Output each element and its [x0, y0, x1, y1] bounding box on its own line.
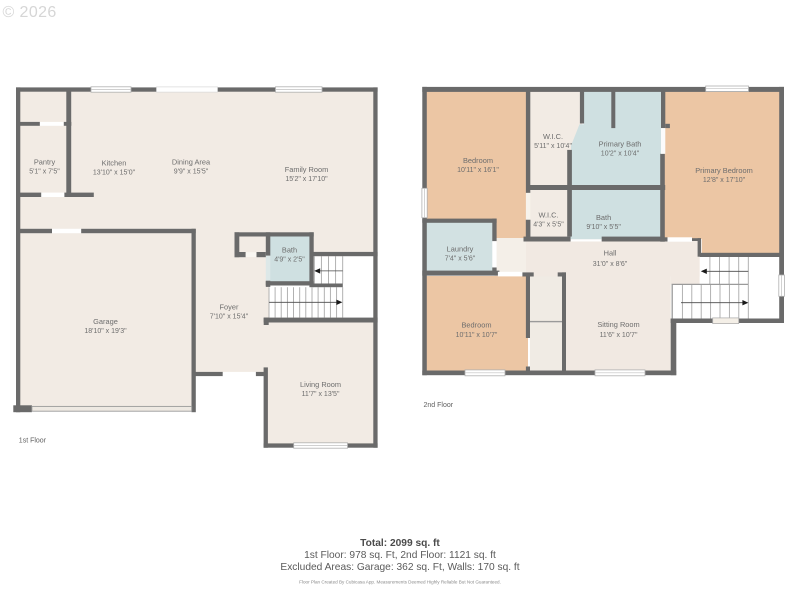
svg-text:Primary Bedroom: Primary Bedroom [695, 166, 753, 175]
svg-text:15'2" x 17'10": 15'2" x 17'10" [285, 176, 328, 183]
svg-text:© 2026: © 2026 [3, 4, 57, 21]
svg-text:Bedroom: Bedroom [463, 156, 493, 165]
svg-text:Floor Plan Created By Cubicasa: Floor Plan Created By Cubicasa App. Meas… [299, 580, 501, 585]
svg-text:18'10" x 19'3": 18'10" x 19'3" [84, 328, 127, 335]
svg-text:4'9" x 2'5": 4'9" x 2'5" [274, 256, 305, 263]
svg-text:Total: 2099 sq. ft: Total: 2099 sq. ft [360, 538, 440, 549]
svg-text:10'11" x 10'7": 10'11" x 10'7" [456, 332, 498, 339]
svg-text:Kitchen: Kitchen [102, 158, 127, 167]
svg-text:9'9" x 15'5": 9'9" x 15'5" [174, 168, 209, 175]
svg-text:11'6" x 10'7": 11'6" x 10'7" [600, 332, 638, 339]
svg-text:W.I.C.: W.I.C. [538, 210, 558, 219]
svg-text:1st Floor: 1st Floor [19, 438, 47, 445]
svg-text:Hall: Hall [604, 249, 617, 258]
svg-text:Living Room: Living Room [300, 380, 341, 389]
svg-text:5'1" x 7'5": 5'1" x 7'5" [29, 168, 60, 175]
svg-text:31'0" x 8'6": 31'0" x 8'6" [593, 261, 628, 268]
svg-text:10'2" x 10'4": 10'2" x 10'4" [601, 150, 640, 157]
svg-text:7'10" x 15'4": 7'10" x 15'4" [210, 314, 249, 321]
svg-text:11'7" x 13'5": 11'7" x 13'5" [302, 391, 340, 398]
svg-text:Bedroom: Bedroom [462, 320, 492, 329]
svg-text:Garage: Garage [93, 317, 118, 326]
svg-text:Excluded Areas: Garage: 362 sq: Excluded Areas: Garage: 362 sq. Ft, Wall… [280, 562, 519, 573]
svg-text:Laundry: Laundry [447, 244, 474, 253]
svg-text:9'10" x 5'5": 9'10" x 5'5" [586, 224, 621, 231]
svg-text:1st Floor: 978 sq. Ft, 2nd Flo: 1st Floor: 978 sq. Ft, 2nd Floor: 1121 s… [304, 550, 496, 561]
svg-text:Pantry: Pantry [34, 157, 56, 166]
svg-text:13'10" x 15'0": 13'10" x 15'0" [93, 169, 136, 176]
svg-text:4'3" x 5'5": 4'3" x 5'5" [533, 221, 564, 228]
svg-text:7'4" x 5'6": 7'4" x 5'6" [445, 256, 476, 263]
svg-text:12'8" x 17'10": 12'8" x 17'10" [703, 177, 746, 184]
svg-text:5'11" x 10'4": 5'11" x 10'4" [534, 143, 572, 150]
svg-text:Foyer: Foyer [220, 303, 239, 312]
svg-text:Bath: Bath [596, 213, 611, 222]
svg-text:Bath: Bath [282, 246, 297, 255]
svg-text:Primary Bath: Primary Bath [599, 139, 642, 148]
svg-text:Family Room: Family Room [285, 165, 329, 174]
svg-text:Sitting Room: Sitting Room [597, 320, 639, 329]
svg-text:10'11" x 16'1": 10'11" x 16'1" [457, 167, 499, 174]
svg-text:2nd Floor: 2nd Floor [424, 402, 454, 409]
svg-text:Dining Area: Dining Area [172, 157, 211, 166]
svg-text:W.I.C.: W.I.C. [543, 132, 563, 141]
